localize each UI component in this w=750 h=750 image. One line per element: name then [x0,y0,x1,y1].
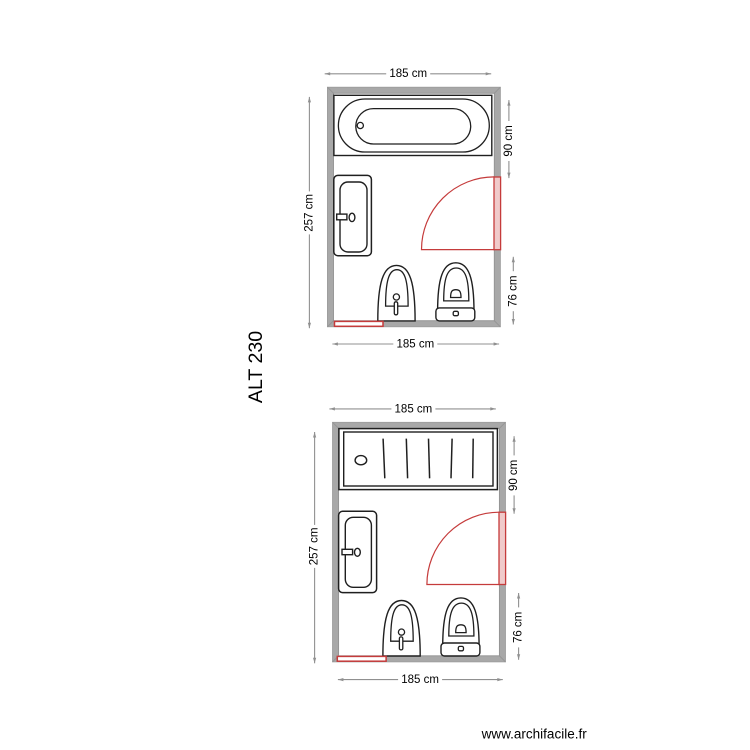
svg-text:76 cm: 76 cm [507,276,519,307]
svg-text:www.archifacile.fr: www.archifacile.fr [481,727,588,742]
svg-text:185 cm: 185 cm [389,68,427,80]
svg-text:90 cm: 90 cm [503,125,515,156]
svg-text:185 cm: 185 cm [401,674,439,686]
svg-text:76 cm: 76 cm [513,612,525,643]
svg-text:90 cm: 90 cm [508,460,520,491]
svg-text:257 cm: 257 cm [303,194,315,232]
svg-text:ALT 230: ALT 230 [245,331,267,403]
svg-text:185 cm: 185 cm [395,403,433,415]
svg-text:257 cm: 257 cm [309,528,321,566]
svg-text:185 cm: 185 cm [396,338,434,350]
